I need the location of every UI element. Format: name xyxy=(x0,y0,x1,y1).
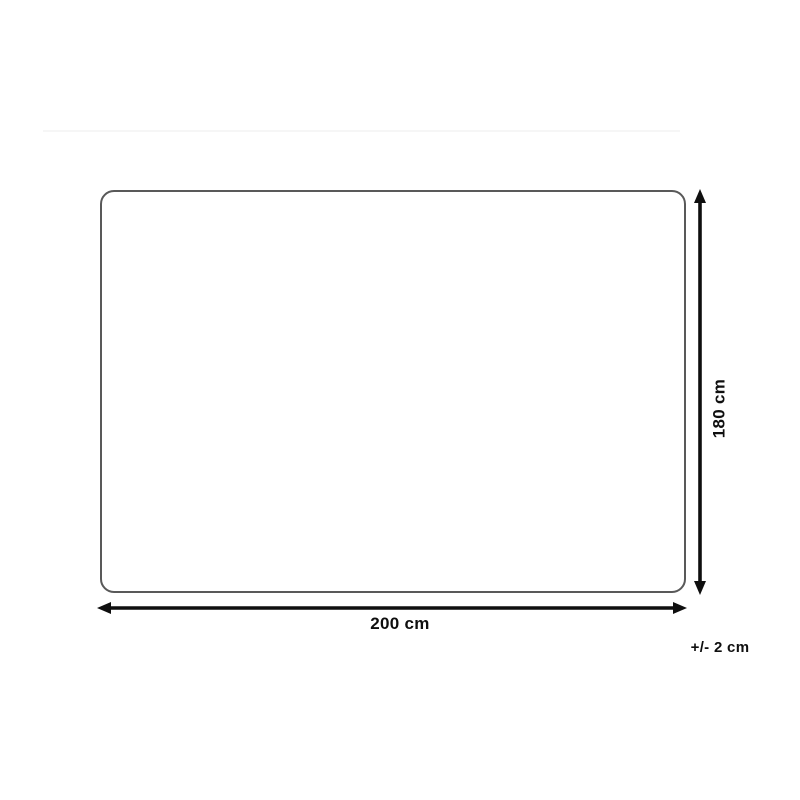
product-outline xyxy=(100,190,686,593)
width-dimension-label: 200 cm xyxy=(300,614,500,634)
tolerance-label: +/- 2 cm xyxy=(650,639,790,656)
width-arrow-left-head-icon xyxy=(97,602,111,614)
faint-divider-line xyxy=(43,130,680,132)
height-arrow-top-head-icon xyxy=(694,189,706,203)
dimension-diagram: 200 cm 180 cm +/- 2 cm xyxy=(0,0,800,800)
height-dimension-label: 180 cm xyxy=(709,359,730,459)
width-arrow-right-head-icon xyxy=(673,602,687,614)
height-dimension-arrow-icon xyxy=(691,189,709,595)
height-arrow-bottom-head-icon xyxy=(694,581,706,595)
